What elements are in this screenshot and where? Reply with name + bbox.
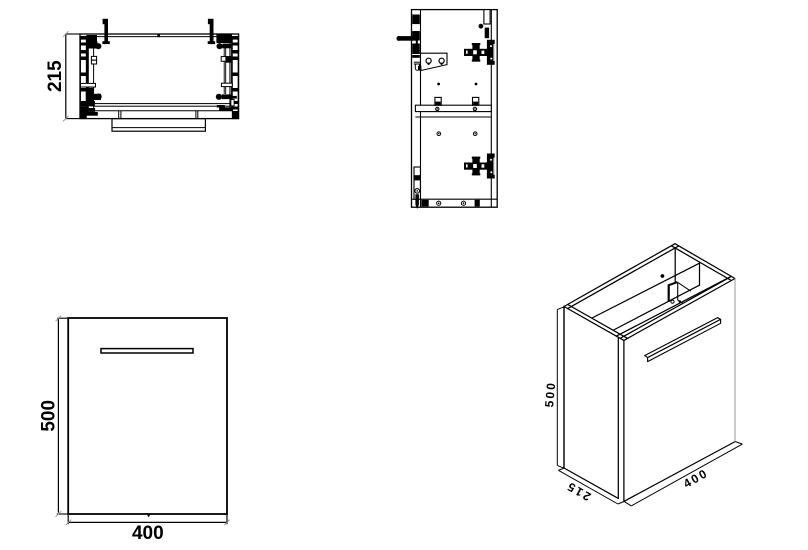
svg-text:215: 215 xyxy=(45,60,66,92)
svg-text:400: 400 xyxy=(132,523,164,544)
svg-text:500: 500 xyxy=(38,400,59,432)
svg-text:500: 500 xyxy=(542,380,558,407)
